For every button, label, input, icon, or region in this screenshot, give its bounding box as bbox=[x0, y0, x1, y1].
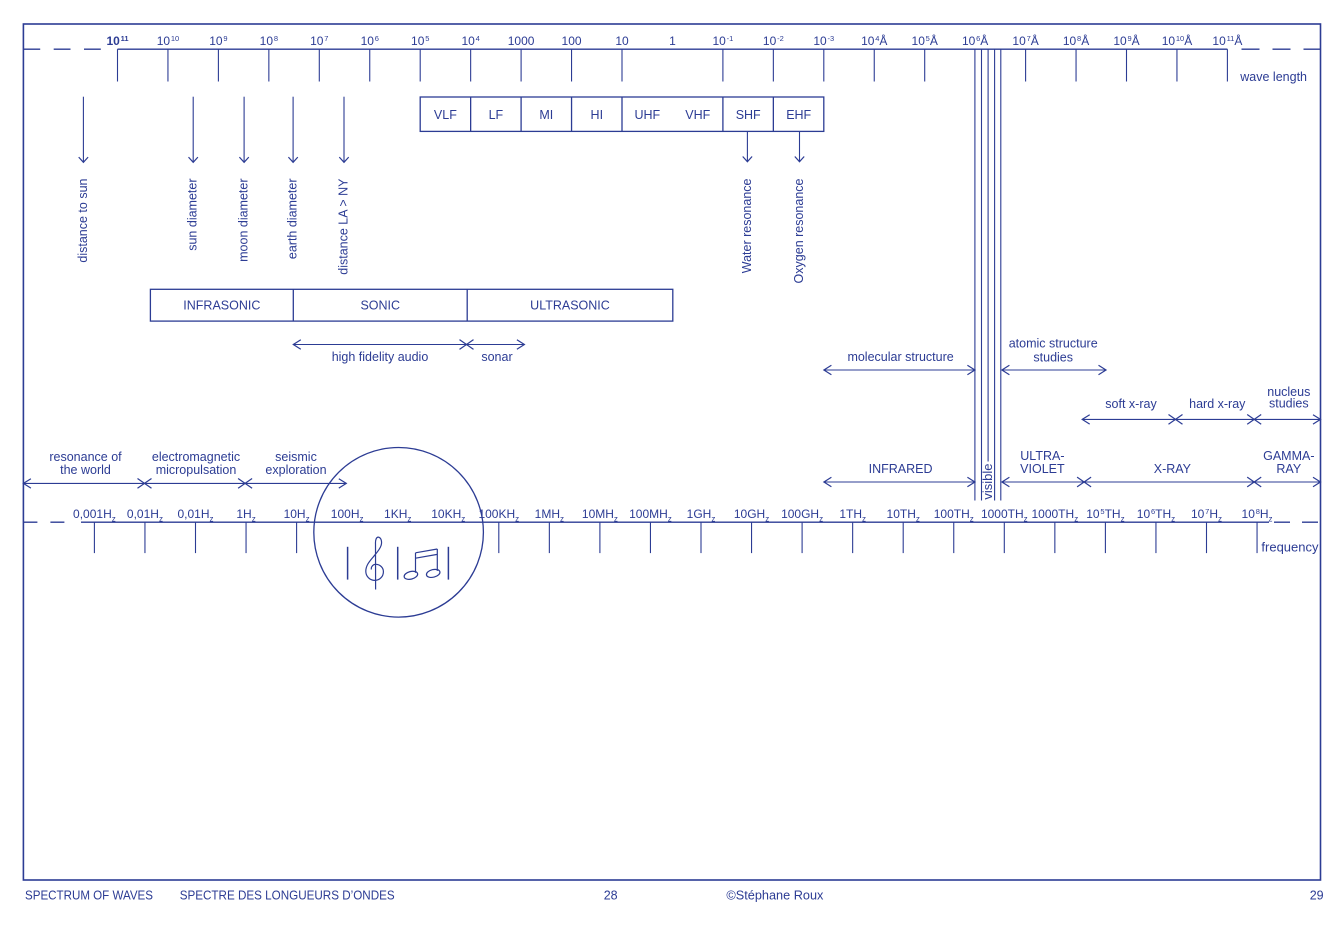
svg-text:28: 28 bbox=[604, 889, 618, 903]
svg-text:100GHz: 100GHz bbox=[781, 507, 823, 523]
svg-text:10: 10 bbox=[615, 34, 629, 48]
svg-text:SPECTRE DES LONGUEURS D’ONDES: SPECTRE DES LONGUEURS D’ONDES bbox=[180, 889, 395, 903]
svg-text:distance LA > NY: distance LA > NY bbox=[337, 178, 351, 275]
svg-text:wave length: wave length bbox=[1239, 70, 1307, 84]
svg-text:Water resonance: Water resonance bbox=[740, 178, 754, 273]
svg-text:electromagnetic: electromagnetic bbox=[152, 450, 240, 464]
svg-text:100THz: 100THz bbox=[934, 507, 974, 523]
svg-text:VHF: VHF bbox=[685, 108, 710, 122]
svg-text:earth diameter: earth diameter bbox=[286, 179, 300, 260]
svg-text:frequency: frequency bbox=[1261, 540, 1319, 555]
svg-text:INFRARED: INFRARED bbox=[869, 462, 933, 476]
svg-text:RAY: RAY bbox=[1276, 462, 1301, 476]
svg-text:0,01Hz: 0,01Hz bbox=[127, 507, 163, 523]
svg-text:resonance of: resonance of bbox=[49, 450, 122, 464]
svg-text:atomic structure: atomic structure bbox=[1009, 336, 1098, 350]
svg-text:high fidelity audio: high fidelity audio bbox=[332, 350, 429, 364]
svg-text:100MHz: 100MHz bbox=[629, 507, 672, 523]
svg-text:LF: LF bbox=[489, 108, 504, 122]
svg-text:0,01Hz: 0,01Hz bbox=[177, 507, 213, 523]
svg-text:EHF: EHF bbox=[786, 108, 811, 122]
svg-text:INFRASONIC: INFRASONIC bbox=[183, 299, 260, 313]
svg-text:studies: studies bbox=[1033, 351, 1073, 365]
svg-text:soft x-ray: soft x-ray bbox=[1105, 397, 1157, 411]
svg-text:108Å: 108Å bbox=[1063, 33, 1089, 48]
svg-text:100: 100 bbox=[562, 34, 582, 48]
svg-text:1000: 1000 bbox=[508, 34, 535, 48]
svg-text:1000THz: 1000THz bbox=[981, 507, 1028, 523]
svg-text:the world: the world bbox=[60, 463, 111, 477]
svg-text:SHF: SHF bbox=[736, 108, 761, 122]
svg-text:hard x-ray: hard x-ray bbox=[1189, 397, 1246, 411]
svg-text:micropulsation: micropulsation bbox=[156, 463, 237, 477]
svg-text:seismic: seismic bbox=[275, 450, 317, 464]
svg-text:100KHz: 100KHz bbox=[478, 507, 519, 523]
svg-text:10GHz: 10GHz bbox=[734, 507, 769, 523]
svg-text:10MHz: 10MHz bbox=[582, 507, 618, 523]
svg-text:ULTRASONIC: ULTRASONIC bbox=[530, 299, 610, 313]
svg-text:VIOLET: VIOLET bbox=[1020, 462, 1065, 476]
svg-text:Oxygen resonance: Oxygen resonance bbox=[792, 178, 806, 283]
svg-text:1KHz: 1KHz bbox=[384, 507, 411, 523]
svg-text:SONIC: SONIC bbox=[360, 299, 400, 313]
svg-text:exploration: exploration bbox=[265, 463, 326, 477]
svg-text:10THz: 10THz bbox=[887, 507, 920, 523]
svg-text:molecular structure: molecular structure bbox=[847, 350, 953, 364]
svg-text:109Å: 109Å bbox=[1113, 33, 1139, 48]
svg-text:107Å: 107Å bbox=[1012, 33, 1038, 48]
svg-text:sun diameter: sun diameter bbox=[186, 179, 200, 251]
svg-text:SPECTRUM OF WAVES: SPECTRUM OF WAVES bbox=[25, 889, 153, 903]
svg-text:1GHz: 1GHz bbox=[687, 507, 716, 523]
svg-text:1: 1 bbox=[669, 34, 676, 48]
svg-text:©Stéphane Roux: ©Stéphane Roux bbox=[726, 889, 824, 903]
svg-text:104Å: 104Å bbox=[861, 33, 887, 48]
svg-text:studies: studies bbox=[1269, 397, 1309, 411]
svg-text:105Å: 105Å bbox=[912, 33, 938, 48]
svg-text:sonar: sonar bbox=[481, 350, 512, 364]
svg-text:1THz: 1THz bbox=[839, 507, 866, 523]
svg-text:X-RAY: X-RAY bbox=[1154, 462, 1192, 476]
svg-text:105THz: 105THz bbox=[1086, 507, 1124, 524]
svg-text:distance to sun: distance to sun bbox=[76, 178, 90, 262]
svg-text:HI: HI bbox=[591, 108, 604, 122]
svg-text:106THz: 106THz bbox=[1137, 507, 1175, 524]
svg-text:0,001Hz: 0,001Hz bbox=[73, 507, 116, 523]
svg-text:100Hz: 100Hz bbox=[331, 507, 364, 523]
svg-text:1000THz: 1000THz bbox=[1031, 507, 1078, 523]
svg-text:visible: visible bbox=[980, 464, 995, 500]
svg-text:moon diameter: moon diameter bbox=[237, 179, 251, 262]
svg-text:MI: MI bbox=[539, 108, 553, 122]
svg-text:UHF: UHF bbox=[634, 108, 660, 122]
svg-text:VLF: VLF bbox=[434, 108, 457, 122]
svg-text:1MHz: 1MHz bbox=[535, 507, 564, 523]
svg-text:29: 29 bbox=[1310, 889, 1324, 903]
svg-text:106Å: 106Å bbox=[962, 33, 988, 48]
svg-text:10KHz: 10KHz bbox=[431, 507, 465, 523]
